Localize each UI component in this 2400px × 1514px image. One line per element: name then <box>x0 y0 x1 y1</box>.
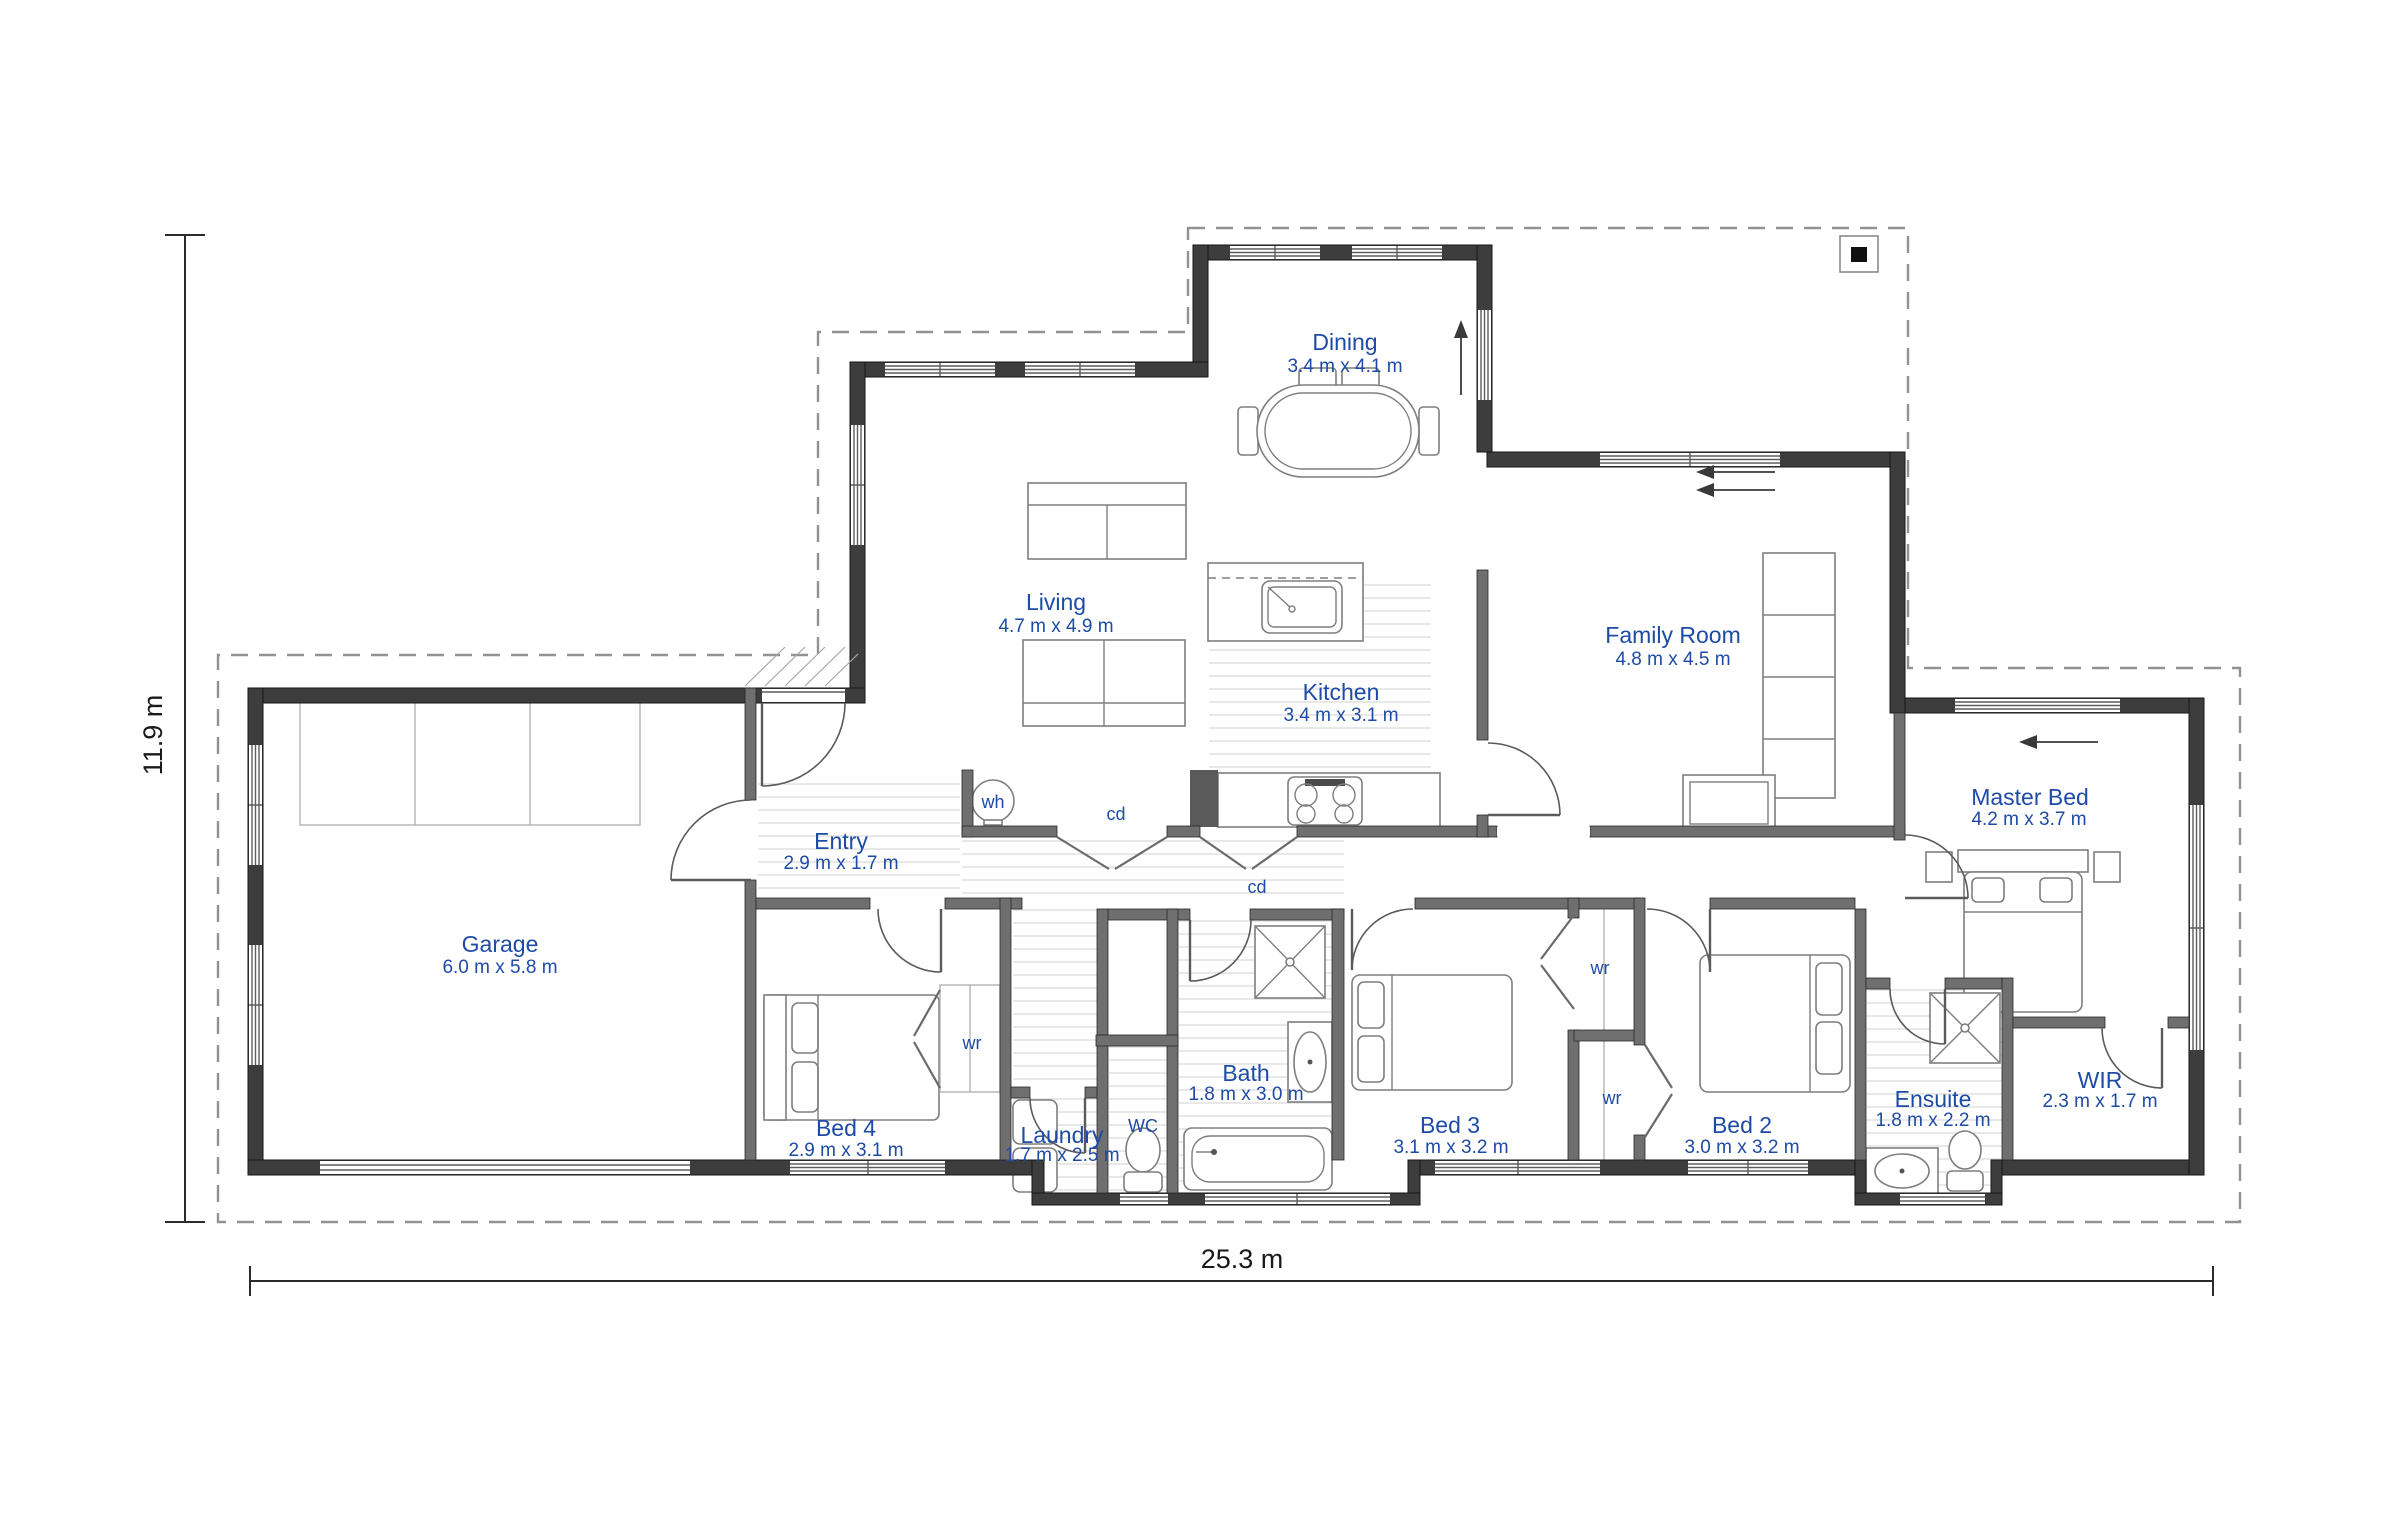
room-size-dining: 3.4 m x 4.1 m <box>1287 356 1402 377</box>
label-wr-bed3: wr <box>1590 958 1610 978</box>
front-door <box>762 703 845 786</box>
room-label-kitchen: Kitchen <box>1303 679 1380 705</box>
room-label-living: Living <box>1026 589 1086 615</box>
dim-width-label: 25.3 m <box>1201 1244 1284 1274</box>
family-sofa <box>1763 553 1835 798</box>
room-label-master: Master Bed <box>1971 784 2089 810</box>
dimension-height: 11.9 m <box>138 235 205 1222</box>
master-slider-arrow <box>2019 735 2098 749</box>
dimension-width: 25.3 m <box>250 1244 2213 1296</box>
dining-table <box>1238 368 1439 477</box>
room-label-bed3: Bed 3 <box>1420 1112 1480 1138</box>
bed4-bed <box>764 995 939 1120</box>
dining-slider-arrow <box>1454 320 1468 395</box>
hall-stub-floor <box>1013 910 1097 1079</box>
room-label-garage: Garage <box>462 931 539 957</box>
room-label-dining: Dining <box>1312 329 1377 355</box>
room-size-living: 4.7 m x 4.9 m <box>998 616 1113 637</box>
living-sofa-top <box>1028 483 1186 559</box>
room-label-family: Family Room <box>1605 622 1740 648</box>
ensuite-toilet <box>1947 1131 1983 1191</box>
label-wr-bed4: wr <box>962 1033 982 1053</box>
room-size-master: 4.2 m x 3.7 m <box>1971 809 2086 830</box>
room-size-bed2: 3.0 m x 3.2 m <box>1684 1137 1799 1158</box>
ensuite-shower <box>1930 993 2000 1063</box>
kitchen-family-door <box>1488 743 1560 815</box>
room-size-entry: 2.9 m x 1.7 m <box>783 853 898 874</box>
label-wr-bed2: wr <box>1602 1088 1622 1108</box>
family-slider-arrow <box>1696 465 1775 497</box>
room-size-ensuite: 1.8 m x 2.2 m <box>1875 1110 1990 1131</box>
garage-storage <box>300 700 640 825</box>
room-size-bath: 1.8 m x 3.0 m <box>1188 1084 1303 1105</box>
room-size-garage: 6.0 m x 5.8 m <box>442 957 557 978</box>
room-size-family: 4.8 m x 4.5 m <box>1615 649 1730 670</box>
label-wh: wh <box>980 792 1004 812</box>
room-label-bed2: Bed 2 <box>1712 1112 1772 1138</box>
kitchen-counter <box>1190 770 1440 827</box>
kitchen-island <box>1208 563 1363 641</box>
bed3-door <box>1352 909 1413 970</box>
ensuite-vanity-sink <box>1866 1148 1938 1194</box>
family-table <box>1683 775 1775 831</box>
wc-toilet <box>1124 1128 1162 1192</box>
bath-door <box>1190 920 1251 981</box>
column-marker <box>1840 236 1878 272</box>
room-label-ensuite: Ensuite <box>1895 1086 1972 1112</box>
porch-hatch <box>745 647 858 692</box>
cd-bifold-1 <box>1057 837 1167 869</box>
cd-bifold-2 <box>1200 837 1297 869</box>
dim-height-label: 11.9 m <box>138 695 168 776</box>
room-label-wc: WC <box>1128 1116 1158 1136</box>
room-label-entry: Entry <box>814 828 868 854</box>
room-size-bed4: 2.9 m x 3.1 m <box>788 1140 903 1161</box>
living-sofa-bottom <box>1023 640 1185 726</box>
room-label-bed4: Bed 4 <box>816 1115 876 1141</box>
bed3-bed <box>1352 975 1512 1090</box>
room-size-kitchen: 3.4 m x 3.1 m <box>1283 705 1398 726</box>
room-label-bath: Bath <box>1222 1060 1269 1086</box>
bed4-door <box>878 909 941 972</box>
bed2-bed <box>1700 955 1850 1092</box>
label-cd-2: cd <box>1247 877 1266 897</box>
room-size-bed3: 3.1 m x 3.2 m <box>1393 1137 1508 1158</box>
garage-internal-door <box>671 800 751 880</box>
hallway-floor <box>962 841 1344 893</box>
bath-shower <box>1255 926 1325 998</box>
floor-plan-drawing: 11.9 m 25.3 m <box>0 0 2400 1514</box>
bed3-wr-bifold <box>1541 915 1574 1009</box>
room-size-laundry: 1.7 m x 2.5 m <box>1004 1145 1119 1166</box>
bathtub <box>1184 1128 1332 1190</box>
room-size-wir: 2.3 m x 1.7 m <box>2042 1091 2157 1112</box>
bed2-wr-bifold <box>1645 1045 1672 1137</box>
floor-plan-page: 11.9 m 25.3 m <box>0 0 2400 1514</box>
label-cd-1: cd <box>1106 804 1125 824</box>
room-label-wir: WIR <box>2078 1067 2123 1093</box>
